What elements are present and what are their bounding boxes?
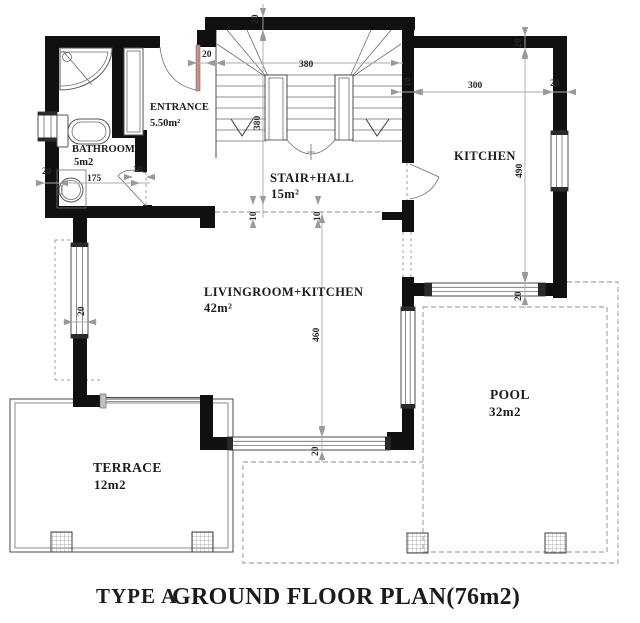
livingroom-left-window	[71, 243, 88, 338]
bathroom-area: 5m2	[74, 157, 93, 168]
toilet	[57, 115, 110, 147]
terrace-outline	[10, 399, 233, 552]
pillars	[51, 532, 566, 553]
dim-stair-width: 380	[299, 60, 314, 70]
livingroom-label: LIVINGROOM+KITCHEN	[204, 285, 363, 299]
bathroom-fixtures	[57, 48, 143, 208]
pillar	[407, 533, 428, 553]
livingroom-area: 42m²	[204, 301, 232, 315]
dim-entrance-wall: 20	[202, 50, 212, 60]
kitchen-door	[407, 163, 439, 200]
entrance-door	[160, 45, 200, 91]
pillar	[51, 532, 72, 552]
walls	[45, 17, 567, 450]
entrance-area: 5.50m²	[150, 118, 180, 129]
dim-hall-wall-a: 10	[249, 211, 259, 221]
plan-title: TYPE A GROUND FLOOR PLAN(76m2)	[96, 584, 520, 610]
dim-bath-width: 175	[87, 174, 102, 184]
dim-stair-depth: 380	[253, 116, 263, 131]
livingroom-kitchen-opening	[403, 232, 411, 277]
bathroom-door	[118, 170, 146, 206]
pool-basin	[423, 307, 607, 552]
pool-area: 32m2	[489, 404, 521, 419]
entrance-label: ENTRANCE	[150, 102, 209, 113]
terrace-area: 12m2	[94, 477, 126, 492]
pillar	[545, 533, 566, 553]
dim-kitchen-top-wall: 20	[514, 38, 524, 48]
floor-plan-drawing: 20 380 380 20 10 10 10 300 20 20 490 20 …	[0, 0, 640, 623]
dim-living-depth: 460	[312, 328, 322, 343]
stair-rails	[265, 75, 353, 160]
dim-kitchen-width: 300	[468, 81, 483, 91]
bathroom-label: BATHROOM	[72, 144, 135, 155]
pool-deck-boundary	[243, 282, 618, 563]
plan-title-main: GROUND FLOOR PLAN(76m2)	[172, 584, 520, 610]
dim-kitchen-window: 20	[514, 291, 524, 301]
terrace-label: TERRACE	[93, 460, 162, 475]
shower	[60, 48, 112, 90]
dim-bath-wall: 20	[42, 167, 52, 177]
kitchen-bottom-window	[425, 283, 545, 296]
floor-plan-sheet: 20 380 380 20 10 10 10 300 20 20 490 20 …	[0, 0, 640, 623]
dim-kitchen-wall-right: 20	[550, 79, 560, 89]
livingroom-right-window	[401, 307, 415, 408]
sink	[57, 170, 86, 208]
dim-living-window: 20	[311, 446, 321, 456]
dim-kitchen-wall-left: 10	[403, 77, 413, 87]
plan-title-type: TYPE A	[96, 584, 177, 608]
dim-bath-door: 10	[133, 165, 143, 175]
wall-end-cap	[100, 394, 106, 408]
dim-hall-wall-b: 10	[313, 211, 323, 221]
livingroom-bottom-window	[228, 437, 390, 450]
dim-top-wall: 20	[251, 14, 261, 24]
pool-label: POOL	[490, 387, 530, 402]
kitchen-right-window	[551, 131, 568, 191]
entrance-closet	[124, 48, 143, 135]
dim-living-left-window: 20	[77, 306, 87, 316]
stair-hall-label: STAIR+HALL	[270, 171, 354, 185]
pillar	[192, 532, 213, 552]
dim-kitchen-depth: 490	[515, 164, 525, 179]
staircase	[216, 30, 402, 160]
bathroom-window	[38, 112, 57, 141]
stair-hall-area: 15m²	[271, 187, 299, 201]
kitchen-label: KITCHEN	[454, 149, 516, 163]
